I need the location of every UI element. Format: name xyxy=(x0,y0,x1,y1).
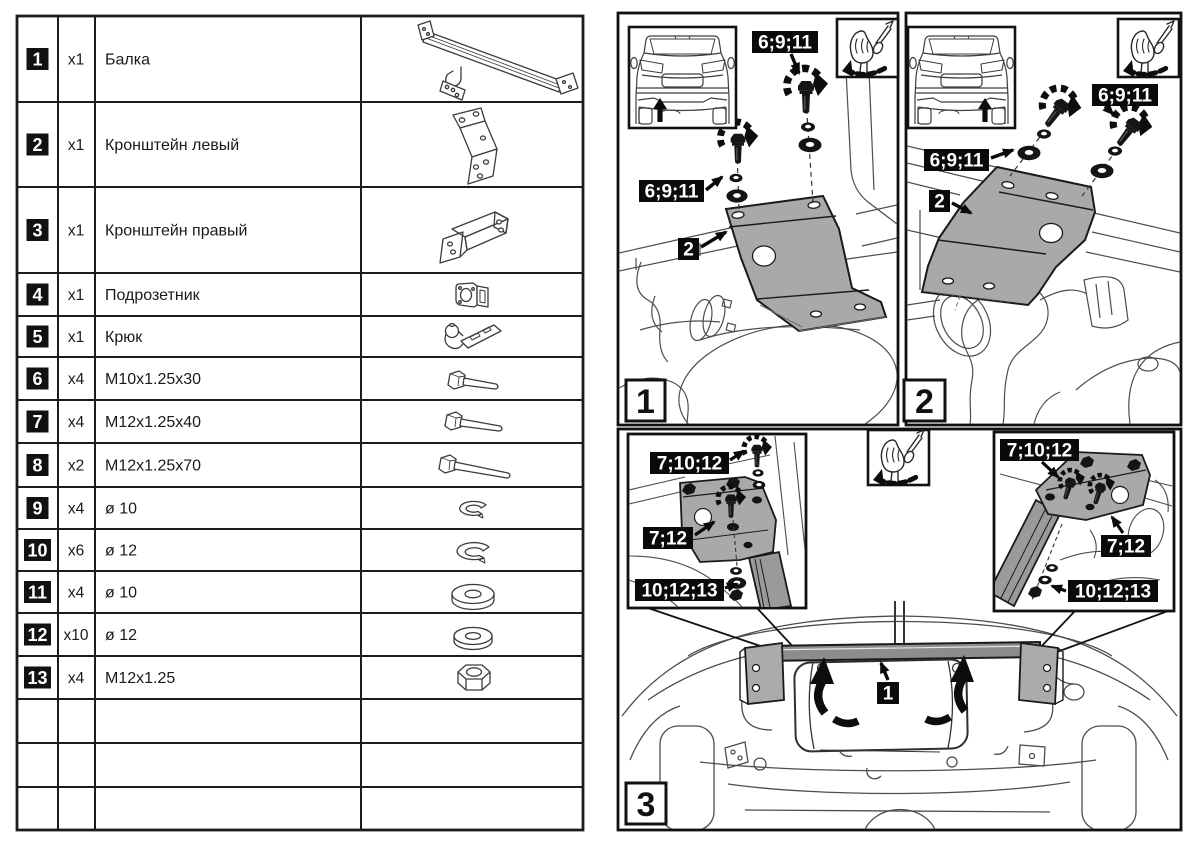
svg-text:x1: x1 xyxy=(68,52,84,69)
svg-text:Крюк: Крюк xyxy=(105,329,143,346)
svg-text:6;9;11: 6;9;11 xyxy=(758,33,812,54)
svg-text:x1: x1 xyxy=(68,223,84,240)
svg-text:2: 2 xyxy=(683,240,694,261)
svg-text:7;10;12: 7;10;12 xyxy=(657,454,723,475)
svg-text:ø 12: ø 12 xyxy=(105,627,137,644)
svg-text:x4: x4 xyxy=(68,670,85,687)
svg-text:x4: x4 xyxy=(68,371,85,388)
svg-text:7;12: 7;12 xyxy=(1107,537,1145,558)
svg-text:13: 13 xyxy=(27,668,47,688)
svg-text:5: 5 xyxy=(32,327,42,347)
svg-text:x6: x6 xyxy=(68,543,84,560)
svg-text:1: 1 xyxy=(883,684,894,705)
svg-text:x2: x2 xyxy=(68,458,84,475)
svg-text:2: 2 xyxy=(915,383,934,421)
svg-text:8: 8 xyxy=(32,456,42,476)
svg-text:Балка: Балка xyxy=(105,52,150,69)
svg-text:10;12;13: 10;12;13 xyxy=(1075,582,1151,603)
svg-text:6;9;11: 6;9;11 xyxy=(645,182,699,203)
svg-text:ø 12: ø 12 xyxy=(105,543,137,560)
svg-text:10;12;13: 10;12;13 xyxy=(641,581,717,602)
svg-text:x4: x4 xyxy=(68,585,85,602)
svg-text:x4: x4 xyxy=(68,414,85,431)
svg-text:М10х1.25х30: М10х1.25х30 xyxy=(105,371,201,388)
svg-text:6;9;11: 6;9;11 xyxy=(930,151,984,172)
svg-text:2: 2 xyxy=(32,135,42,155)
svg-text:x1: x1 xyxy=(68,287,84,304)
svg-text:7;10;12: 7;10;12 xyxy=(1007,441,1073,462)
svg-text:М12х1.25х40: М12х1.25х40 xyxy=(105,414,201,431)
svg-text:6;9;11: 6;9;11 xyxy=(1098,86,1152,107)
svg-text:11: 11 xyxy=(28,583,47,603)
svg-text:7: 7 xyxy=(32,412,42,432)
svg-text:М12х1.25х70: М12х1.25х70 xyxy=(105,458,201,475)
svg-text:Подрозетник: Подрозетник xyxy=(105,287,201,304)
svg-text:2: 2 xyxy=(934,192,945,213)
svg-text:Кронштейн правый: Кронштейн правый xyxy=(105,223,247,240)
svg-text:М12х1.25: М12х1.25 xyxy=(105,670,175,687)
svg-text:1: 1 xyxy=(32,50,42,70)
svg-text:x1: x1 xyxy=(68,329,84,346)
svg-text:1: 1 xyxy=(636,383,655,421)
svg-text:12: 12 xyxy=(27,625,47,645)
svg-text:x1: x1 xyxy=(68,137,84,154)
svg-text:4: 4 xyxy=(32,285,42,305)
svg-text:ø 10: ø 10 xyxy=(105,501,137,518)
svg-text:Кронштейн левый: Кронштейн левый xyxy=(105,137,239,154)
svg-text:7;12: 7;12 xyxy=(649,529,687,550)
svg-text:10: 10 xyxy=(27,541,47,561)
svg-text:x10: x10 xyxy=(64,627,89,644)
svg-text:3: 3 xyxy=(637,786,656,824)
svg-text:ø 10: ø 10 xyxy=(105,585,137,602)
svg-text:9: 9 xyxy=(32,499,42,519)
svg-text:6: 6 xyxy=(32,369,42,389)
svg-text:x4: x4 xyxy=(68,501,85,518)
svg-text:3: 3 xyxy=(32,221,42,241)
